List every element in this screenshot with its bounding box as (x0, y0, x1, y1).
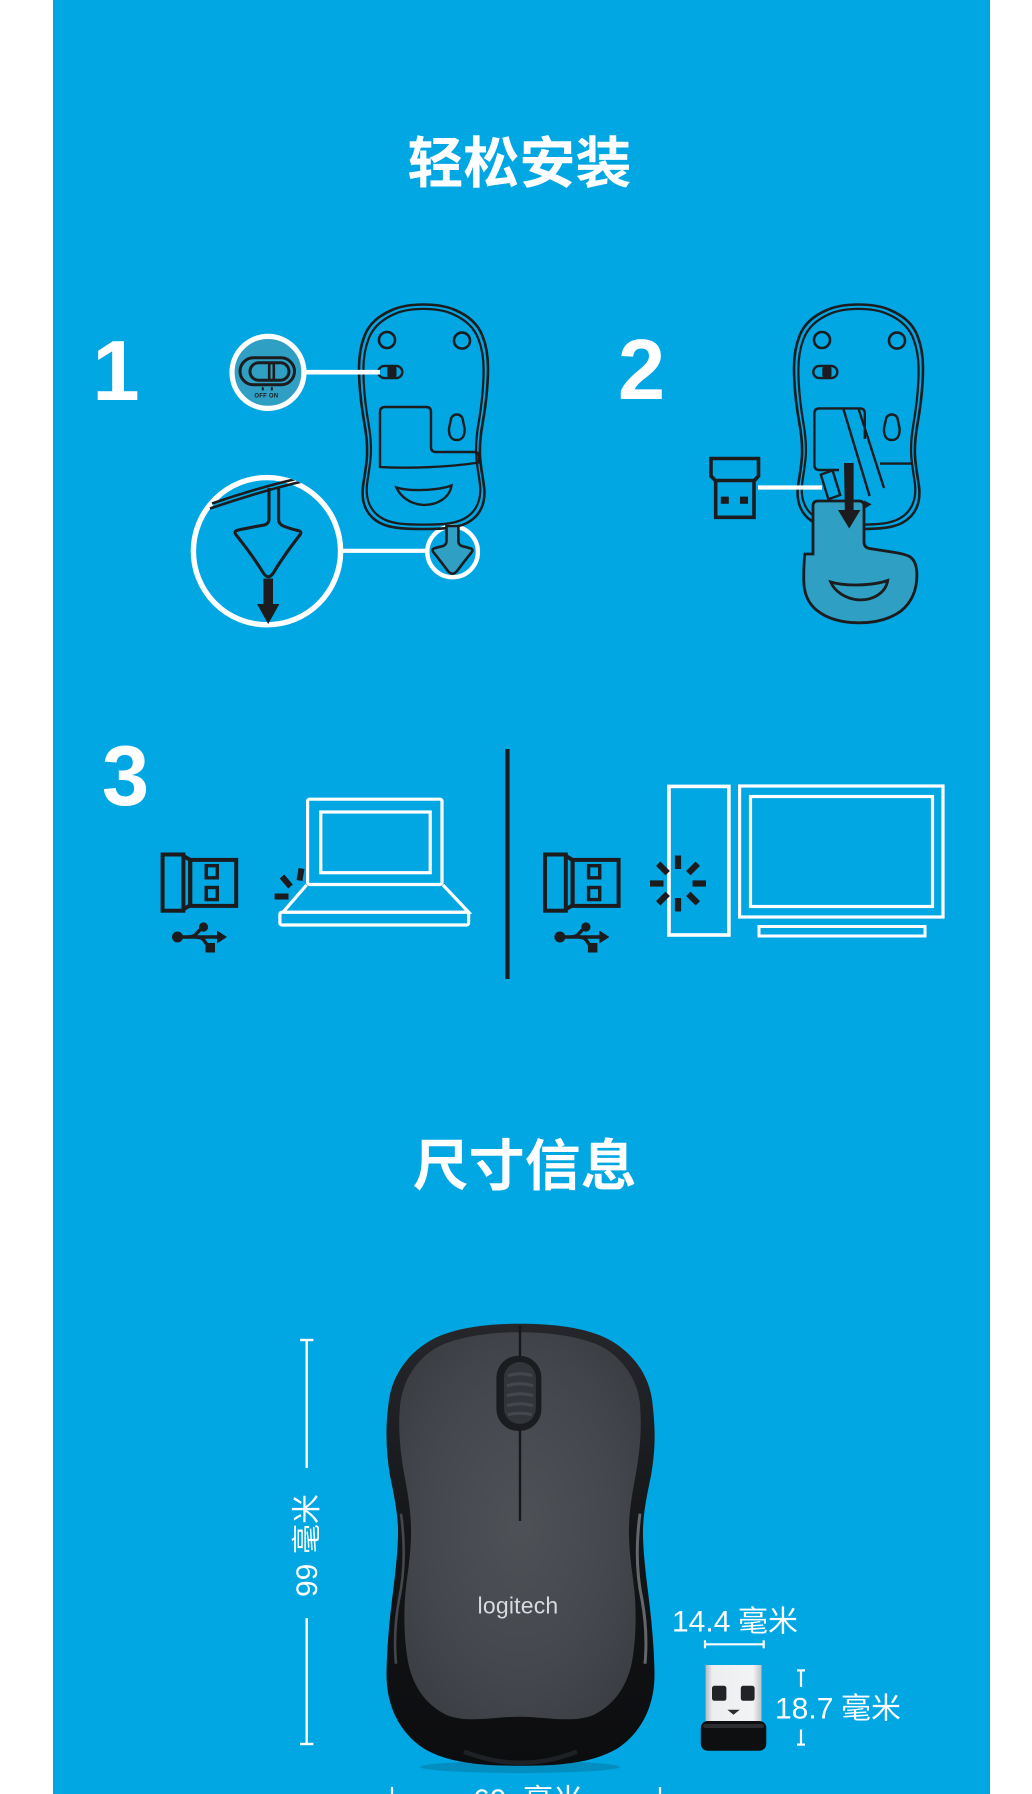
svg-text:OFF ON: OFF ON (254, 393, 278, 399)
svg-text:18.7: 18.7 (775, 1693, 833, 1726)
svg-text:99: 99 (291, 1564, 324, 1597)
svg-text:60: 60 (473, 1784, 506, 1794)
svg-text:14.4: 14.4 (672, 1606, 730, 1639)
svg-text:1: 1 (92, 324, 139, 419)
svg-text:3: 3 (102, 729, 149, 824)
svg-text:2: 2 (618, 323, 665, 418)
svg-text:logitech: logitech (478, 1593, 559, 1619)
